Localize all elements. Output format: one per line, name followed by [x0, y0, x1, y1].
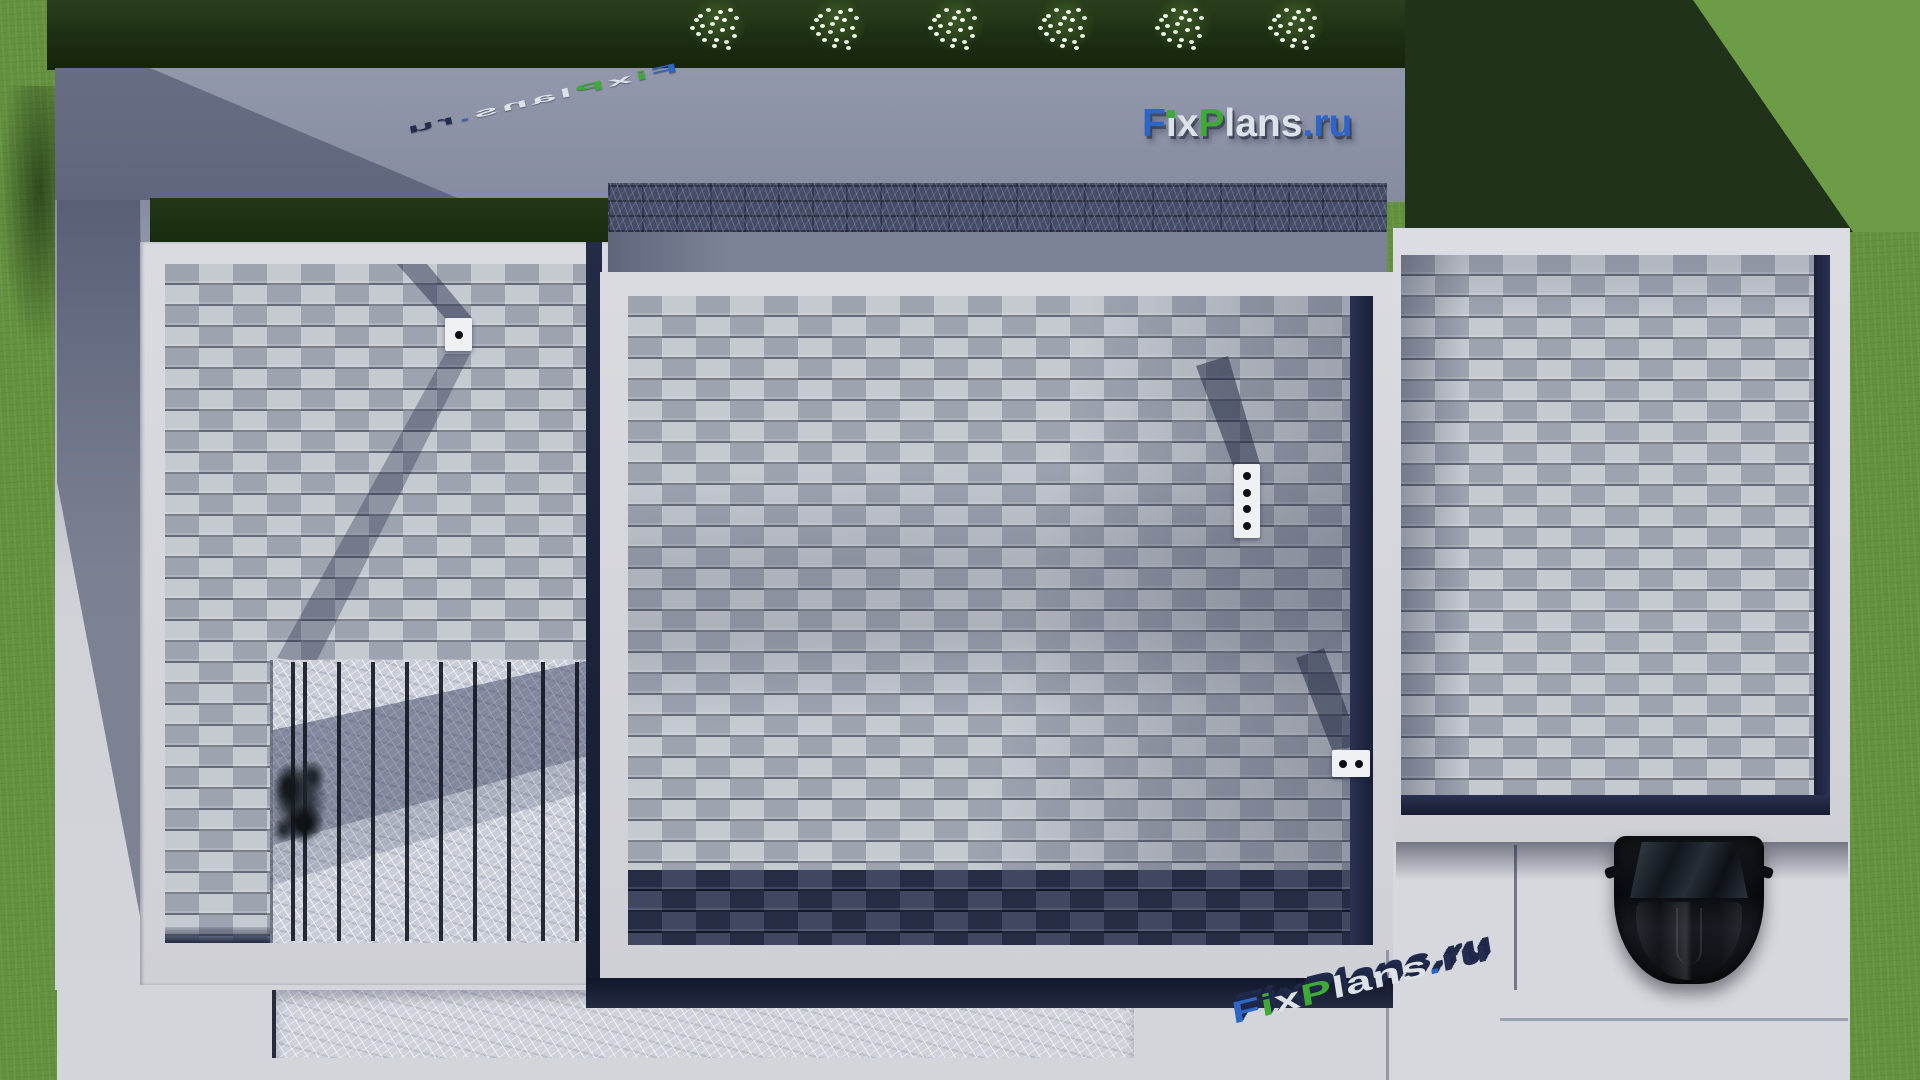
car-windshield	[1630, 842, 1748, 898]
roof-vent-3	[1332, 750, 1370, 777]
right-roof-inner-shadow	[1814, 255, 1830, 815]
patio-terrace	[270, 660, 591, 943]
roof-vent-1	[445, 318, 472, 351]
hedge-strip-inner	[150, 198, 608, 244]
right-roof-inner-shadow-bottom	[1401, 795, 1830, 815]
central-roof-soft-shadow	[628, 296, 1350, 870]
central-roof-dark-band	[628, 870, 1350, 945]
watermark-ruler: FixPlans.ru	[400, 74, 720, 164]
central-roof-inner-shadow	[1350, 296, 1373, 945]
roof-plan-render: FixPlans.ru FıxPlans.ru FixPlans.ru	[0, 0, 1920, 1080]
walkway-concrete-strip	[608, 232, 1387, 272]
driveway-joint	[1500, 1018, 1848, 1021]
lawn-shadow-top-right	[1405, 0, 1920, 232]
right-roof-soft-shadow	[1401, 255, 1814, 795]
roof-vent-2	[1234, 464, 1260, 538]
black-car	[1608, 836, 1770, 990]
watermark-ground-3d: FixPlans.ru	[1240, 952, 1550, 1080]
lawn-sunlit-corner	[1405, 0, 1920, 232]
lawn-shadow-left	[0, 86, 60, 346]
stone-walkway	[608, 183, 1387, 232]
shrub-plant	[263, 746, 337, 856]
brand-logo: FıxPlans.ru	[1142, 102, 1352, 146]
